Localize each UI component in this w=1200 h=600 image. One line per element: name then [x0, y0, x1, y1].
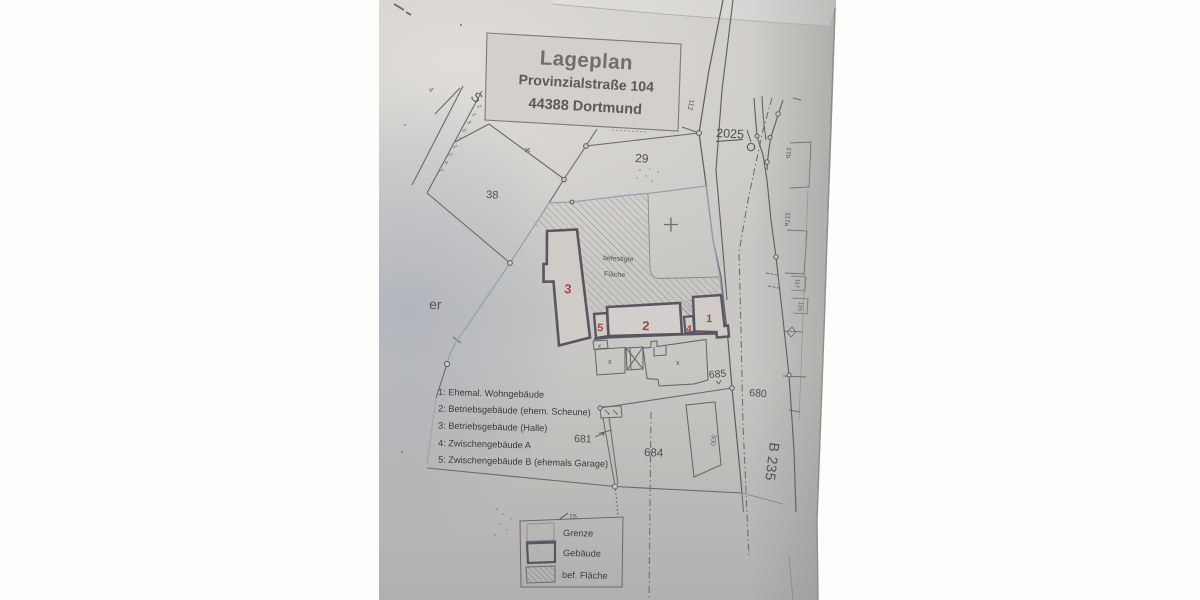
- svg-text:684: 684: [644, 447, 664, 460]
- svg-text:Grenze: Grenze: [563, 528, 593, 539]
- svg-text:681: 681: [574, 433, 592, 446]
- svg-text:x: x: [676, 360, 680, 367]
- svg-text:er: er: [429, 296, 442, 312]
- svg-text:29: 29: [635, 151, 649, 166]
- svg-text:5: 5: [597, 322, 604, 334]
- svg-text:Fläche: Fläche: [604, 271, 625, 279]
- svg-text:1: 1: [706, 313, 713, 325]
- svg-text:115: 115: [796, 302, 803, 311]
- svg-text:Gebäude: Gebäude: [563, 548, 601, 559]
- svg-text:15: 15: [569, 514, 577, 521]
- svg-text:3: 3: [564, 281, 572, 296]
- svg-text:4: 4: [686, 324, 693, 335]
- svg-text:bef. Fläche: bef. Fläche: [562, 570, 608, 581]
- svg-text:38: 38: [486, 189, 499, 202]
- svg-text:117: 117: [793, 279, 800, 288]
- svg-text:300: 300: [709, 434, 717, 447]
- svg-text:2025: 2025: [716, 126, 745, 141]
- svg-text:680: 680: [749, 387, 767, 400]
- svg-text:2: 2: [642, 318, 650, 333]
- svg-text:117a: 117a: [783, 212, 791, 227]
- svg-text:x: x: [608, 359, 612, 366]
- svg-text:685: 685: [708, 368, 726, 381]
- svg-text:17b: 17b: [784, 147, 792, 159]
